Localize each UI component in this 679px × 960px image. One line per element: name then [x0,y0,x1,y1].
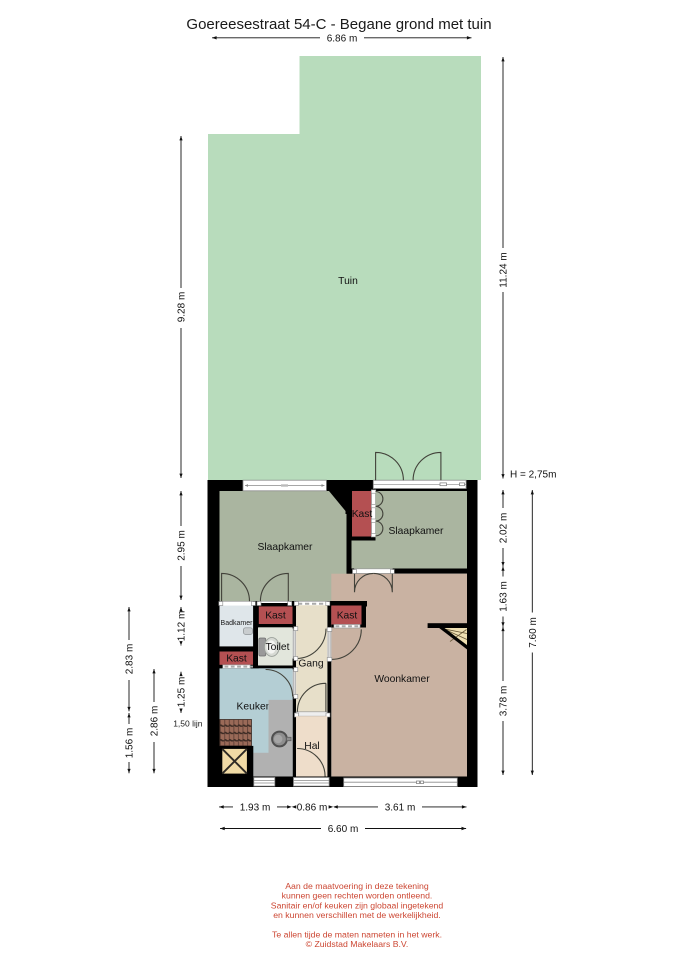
svg-text:2.02 m: 2.02 m [499,513,510,544]
svg-text:Kast: Kast [226,654,247,665]
svg-text:11.24 m: 11.24 m [499,252,510,287]
svg-text:2.95 m: 2.95 m [177,530,188,561]
svg-text:1.12 m: 1.12 m [177,611,188,642]
svg-text:Aan de maatvoering in deze tek: Aan de maatvoering in deze tekening [285,881,429,891]
svg-text:9.28 m: 9.28 m [177,292,188,323]
svg-text:en kunnen verschillen met de w: en kunnen verschillen met de werkelijkhe… [273,910,441,920]
svg-text:2.86 m: 2.86 m [150,706,161,737]
svg-text:3.78 m: 3.78 m [499,686,510,717]
svg-text:1,50 lijn: 1,50 lijn [173,719,203,729]
svg-text:1.63 m: 1.63 m [499,581,510,612]
svg-text:2.83 m: 2.83 m [125,644,136,675]
svg-text:Slaapkamer: Slaapkamer [389,526,445,537]
svg-text:3.61 m: 3.61 m [385,802,416,813]
svg-text:1.25 m: 1.25 m [177,677,188,708]
svg-text:1.56 m: 1.56 m [125,728,136,759]
svg-text:Keuken: Keuken [237,702,272,713]
svg-text:0.86 m: 0.86 m [297,802,328,813]
svg-text:Badkamer: Badkamer [221,620,254,627]
svg-text:7.60 m: 7.60 m [528,617,539,648]
svg-text:Kast: Kast [265,611,286,622]
svg-text:Tuin: Tuin [338,276,358,287]
svg-text:6.60 m: 6.60 m [328,824,359,835]
svg-text:H = 2,75m: H = 2,75m [510,470,556,481]
svg-text:Gang: Gang [298,659,323,670]
svg-text:Slaapkamer: Slaapkamer [258,542,314,553]
svg-text:kunnen geen rechten worden ont: kunnen geen rechten worden ontleend. [282,891,433,901]
svg-text:Toilet: Toilet [265,642,289,653]
svg-text:6.86 m: 6.86 m [327,33,358,44]
svg-text:1.93 m: 1.93 m [240,802,271,813]
svg-text:Goereesestraat 54-C - Begane g: Goereesestraat 54-C - Begane grond met t… [186,16,491,33]
svg-text:Woonkamer: Woonkamer [374,674,430,685]
svg-text:Sanitair en/of keuken zijn glo: Sanitair en/of keuken zijn globaal inget… [271,900,444,910]
svg-text:Kast: Kast [337,611,358,622]
svg-text:Kast: Kast [352,509,373,520]
svg-text:© Zuidstad Makelaars B.V.: © Zuidstad Makelaars B.V. [306,939,409,949]
svg-text:Te allen tijde de maten namete: Te allen tijde de maten nameten in het w… [272,930,442,940]
